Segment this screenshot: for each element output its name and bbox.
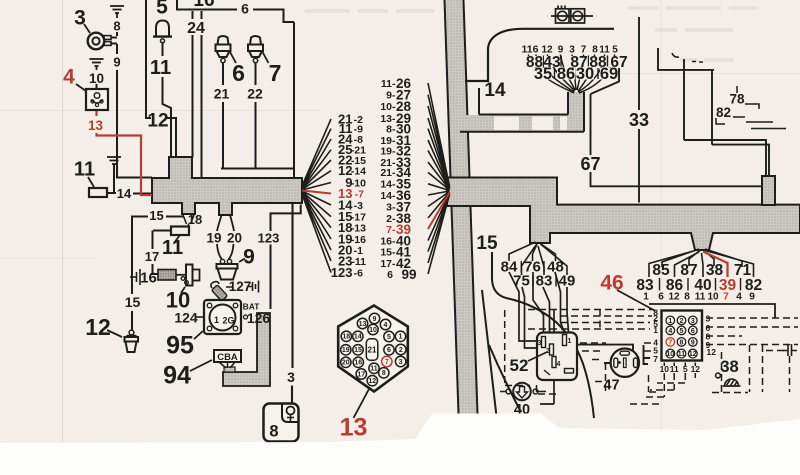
svg-text:8: 8 [680,339,684,346]
svg-text:6: 6 [658,292,664,303]
svg-text:3: 3 [538,340,542,347]
svg-text:-3: -3 [354,200,363,212]
svg-text:12: 12 [147,110,168,131]
svg-text:-14: -14 [351,166,366,178]
svg-text:8: 8 [684,292,690,303]
svg-text:11: 11 [74,159,95,181]
svg-text:99: 99 [402,267,417,282]
svg-text:17: 17 [357,371,365,378]
svg-text:8: 8 [382,370,386,377]
svg-text:15: 15 [149,208,163,223]
svg-text:-13: -13 [351,223,366,235]
svg-text:11: 11 [370,366,378,373]
svg-text:1: 1 [399,334,403,341]
svg-text:2: 2 [546,348,550,355]
svg-text:21: 21 [368,345,377,354]
svg-text:15: 15 [476,233,498,254]
svg-text:10: 10 [660,364,670,374]
svg-text:12: 12 [691,364,701,374]
svg-text:7: 7 [723,292,729,303]
svg-text:14-: 14- [380,190,396,202]
svg-text:24: 24 [187,20,205,37]
svg-text:11-: 11- [381,78,396,90]
svg-text:30: 30 [576,65,594,83]
svg-text:22: 22 [247,86,263,102]
svg-text:1: 1 [214,315,219,325]
svg-text:7-: 7- [386,224,396,236]
svg-text:3: 3 [706,314,711,324]
svg-text:5: 5 [387,334,391,341]
svg-text:17: 17 [145,249,159,264]
svg-text:5: 5 [156,0,168,19]
svg-text:47: 47 [603,378,619,394]
svg-text:14: 14 [117,186,132,201]
svg-text:19-: 19- [380,145,396,157]
svg-text:124: 124 [174,310,198,326]
svg-text:1: 1 [568,338,572,345]
svg-text:7: 7 [668,339,672,346]
svg-text:94: 94 [163,362,191,390]
svg-text:2: 2 [399,347,403,354]
svg-text:15-: 15- [380,246,396,258]
svg-text:52: 52 [510,356,529,375]
svg-text:14: 14 [354,334,362,341]
svg-text:2G: 2G [222,316,234,326]
svg-text:14: 14 [484,80,506,101]
svg-text:6: 6 [241,1,249,17]
svg-text:16: 16 [193,0,214,11]
svg-text:4: 4 [384,322,388,329]
svg-text:10-: 10- [380,101,396,113]
svg-text:83: 83 [536,273,553,290]
svg-text:12: 12 [85,314,111,340]
svg-text:3: 3 [691,318,695,325]
svg-text:4: 4 [668,328,672,335]
svg-text:126: 126 [247,310,271,326]
svg-text:20: 20 [342,360,350,367]
svg-text:38: 38 [720,358,738,376]
svg-text:69: 69 [600,65,618,83]
svg-text:12: 12 [368,378,376,385]
svg-text:18: 18 [188,212,202,227]
svg-text:7: 7 [269,60,282,86]
svg-text:75: 75 [513,273,530,290]
svg-text:8: 8 [269,422,278,440]
svg-text:33: 33 [629,110,649,130]
svg-text:5: 5 [683,364,688,374]
svg-text:3-: 3- [386,201,396,213]
svg-text:3: 3 [399,359,403,366]
svg-text:82: 82 [716,105,731,120]
svg-text:3: 3 [74,7,86,30]
svg-text:46: 46 [600,272,623,295]
svg-text:10: 10 [89,71,104,86]
svg-text:78: 78 [729,91,745,106]
svg-text:11: 11 [678,351,686,358]
svg-text:19: 19 [206,230,221,245]
svg-text:10: 10 [666,351,674,358]
svg-text:14-: 14- [380,179,396,191]
svg-text:15: 15 [125,294,141,310]
svg-text:21: 21 [214,86,230,102]
svg-text:9: 9 [373,316,377,323]
svg-text:127: 127 [229,279,252,294]
svg-text:13: 13 [88,118,104,133]
svg-text:11: 11 [695,292,706,303]
svg-text:6: 6 [232,60,245,86]
svg-text:67: 67 [580,154,600,174]
svg-text:15: 15 [354,347,362,354]
svg-text:9: 9 [243,246,255,269]
svg-text:6: 6 [387,269,393,281]
svg-text:11: 11 [670,364,679,374]
svg-text:12: 12 [707,347,717,357]
svg-text:4: 4 [63,66,75,89]
svg-text:6: 6 [387,347,391,354]
svg-text:7: 7 [653,354,658,364]
svg-text:9: 9 [113,55,120,70]
svg-text:-7: -7 [355,189,364,201]
svg-text:12: 12 [689,351,697,358]
svg-text:11: 11 [162,237,183,259]
svg-text:18: 18 [342,334,350,341]
svg-text:95: 95 [166,332,194,360]
svg-text:1: 1 [643,292,649,303]
svg-text:9: 9 [691,339,695,346]
svg-text:8-: 8- [386,123,396,135]
svg-text:2: 2 [680,318,684,325]
svg-text:5: 5 [680,328,684,335]
svg-text:13: 13 [340,414,368,442]
svg-text:19: 19 [342,347,350,354]
svg-text:9: 9 [749,292,755,303]
svg-text:20: 20 [227,230,242,245]
svg-text:86: 86 [557,65,575,83]
svg-text:16: 16 [140,269,157,286]
svg-text:123: 123 [258,231,280,246]
svg-text:-11: -11 [351,256,366,268]
svg-text:1: 1 [653,325,658,335]
svg-text:3: 3 [287,369,295,385]
svg-text:16: 16 [354,360,362,367]
svg-text:21-: 21- [380,167,396,179]
svg-text:4: 4 [736,292,742,303]
svg-text:13: 13 [359,321,367,328]
svg-text:CBA: CBA [217,352,238,363]
svg-text:12: 12 [668,292,680,303]
svg-text:7: 7 [385,359,389,366]
svg-text:123: 123 [331,265,353,280]
svg-text:8: 8 [113,19,120,34]
svg-text:10: 10 [707,292,719,303]
svg-text:49: 49 [559,273,576,290]
svg-text:11: 11 [150,57,171,79]
svg-text:4: 4 [557,361,561,368]
svg-text:10: 10 [369,327,377,334]
svg-text:9-: 9- [386,90,396,102]
svg-text:1: 1 [668,318,672,325]
svg-text:-6: -6 [354,268,363,280]
svg-text:35: 35 [534,65,552,83]
svg-text:6: 6 [691,328,695,335]
